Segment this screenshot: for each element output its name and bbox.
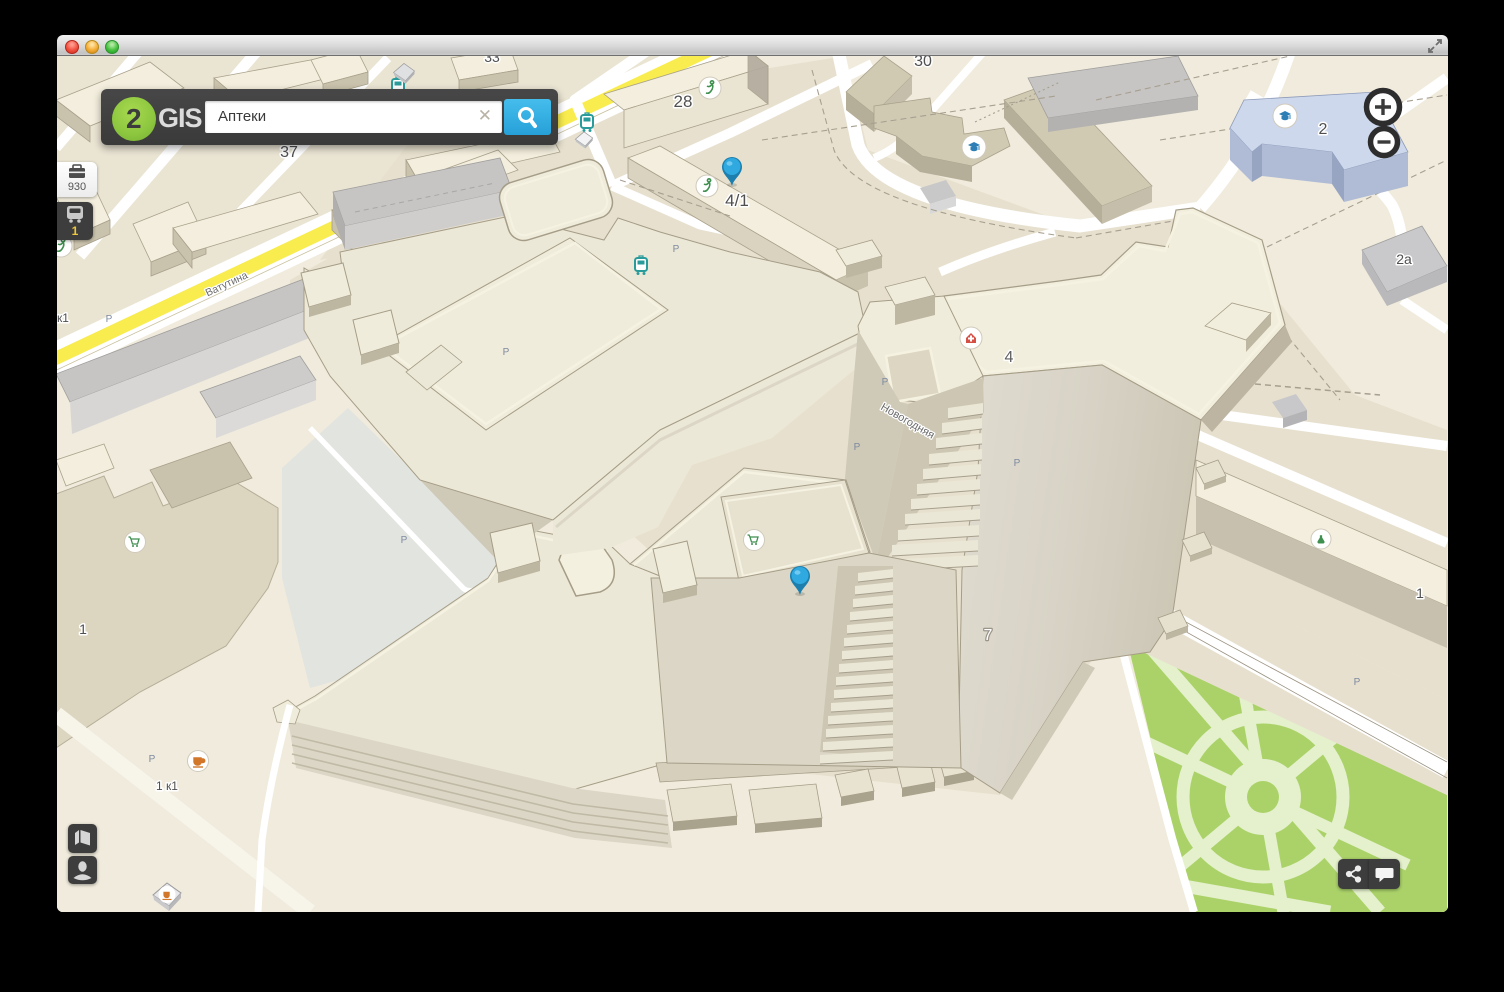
- svg-text:P: P: [854, 442, 861, 453]
- svg-text:P: P: [1014, 458, 1021, 469]
- svg-text:33: 33: [484, 56, 500, 65]
- svg-text:P: P: [401, 535, 408, 546]
- svg-text:37: 37: [280, 144, 298, 161]
- svg-text:P: P: [149, 754, 156, 765]
- svg-text:P: P: [503, 347, 510, 358]
- svg-text:7: 7: [984, 627, 993, 644]
- svg-text:1: 1: [1416, 585, 1424, 601]
- svg-text:1: 1: [79, 621, 87, 637]
- svg-text:4/1: 4/1: [725, 191, 749, 210]
- svg-text:P: P: [1354, 677, 1361, 688]
- svg-text:2a: 2a: [1396, 251, 1412, 267]
- svg-text:P: P: [673, 244, 680, 255]
- svg-text:28: 28: [674, 92, 693, 111]
- svg-text:4: 4: [1005, 349, 1014, 366]
- svg-text:8 к1: 8 к1: [57, 311, 69, 325]
- svg-text:2: 2: [1319, 121, 1328, 138]
- svg-text:1 к1: 1 к1: [156, 779, 178, 793]
- svg-text:P: P: [106, 314, 113, 325]
- svg-text:30: 30: [914, 56, 932, 70]
- svg-text:P: P: [882, 377, 889, 388]
